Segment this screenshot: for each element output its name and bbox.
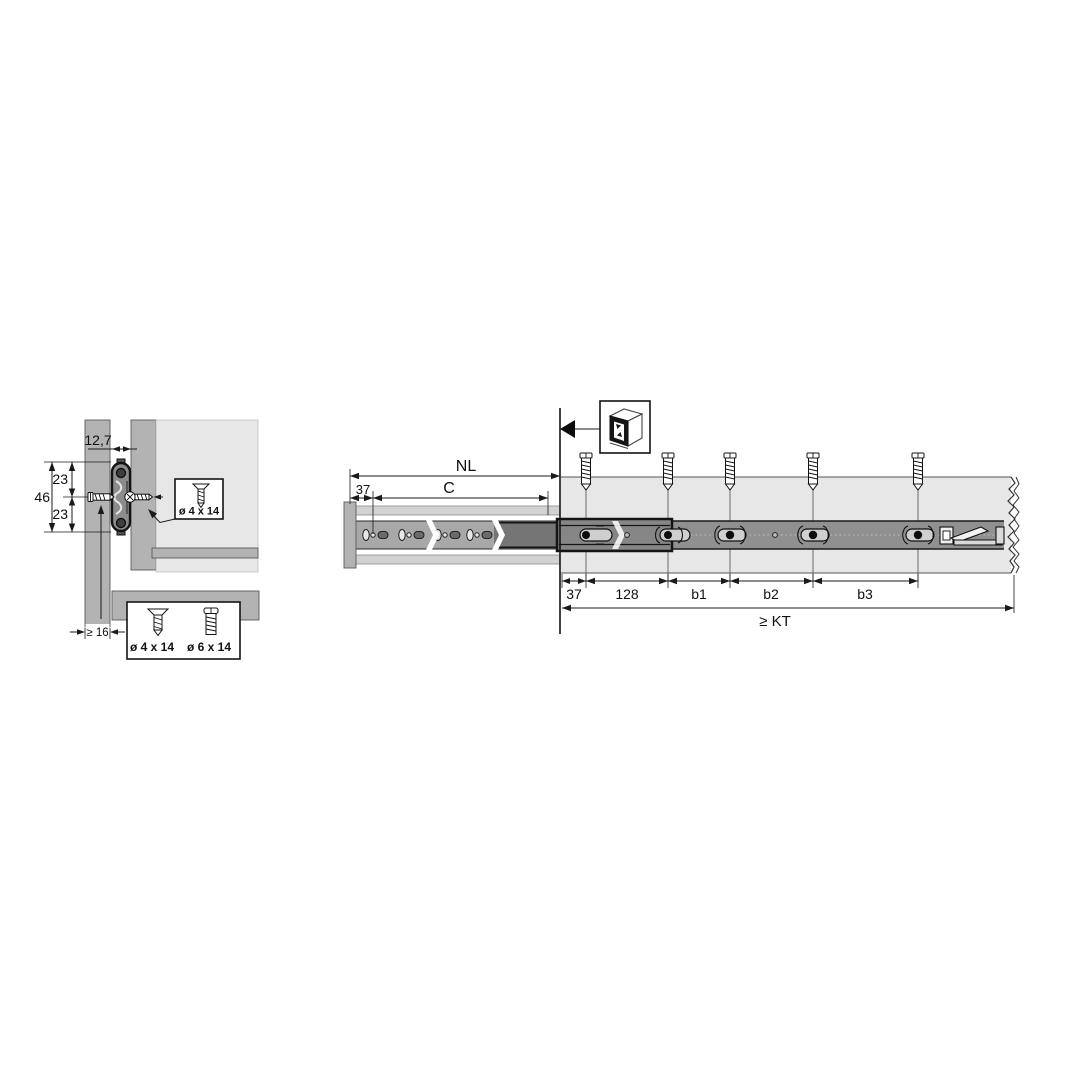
side-view: NL 37 C 37 [344, 401, 1019, 634]
dim-lower-label: 23 [52, 506, 68, 522]
screw-option-2-label: ø 6 x 14 [187, 640, 231, 654]
dim-37-top-label: 37 [356, 482, 370, 497]
dim-c-label: C [443, 480, 455, 497]
front-edge-arrow [560, 420, 575, 438]
dim-panel-thickness-label: ≥ 16 [86, 627, 108, 639]
dim-panel-thickness: ≥ 16 [70, 624, 125, 639]
mounting-screw [724, 453, 736, 490]
dim-chain-1-label: 128 [615, 586, 639, 602]
dim-chain-4-label: b3 [857, 586, 873, 602]
dim-gap-label: 12,7 [84, 432, 111, 448]
dim-total-label: 46 [34, 489, 50, 505]
cabinet-side-panel [85, 420, 110, 627]
technical-drawing-page: 12,7 46 23 23 [0, 0, 1080, 1080]
dim-chain-0-label: 37 [566, 586, 582, 602]
nested-members-section [557, 519, 672, 551]
cross-section-view: 12,7 46 23 23 [34, 420, 259, 659]
dim-upper-label: 23 [52, 471, 68, 487]
mounting-screw [912, 453, 924, 490]
pan-head-screw-option-icon [204, 608, 218, 635]
drawing-svg: 12,7 46 23 23 [0, 0, 1080, 1080]
dim-chain: 37 128 b1 b2 b3 [562, 574, 918, 602]
cabinet-screw [88, 493, 114, 502]
mounting-screw [662, 453, 674, 490]
dim-nl-label: NL [456, 458, 477, 475]
drawer-bottom-panel [152, 548, 258, 558]
front-bracket [344, 502, 356, 568]
dim-chain-3-label: b2 [763, 586, 779, 602]
dim-kt-label: ≥ KT [759, 613, 791, 630]
intermediate-member-overlap [492, 520, 560, 549]
mounting-hole [580, 526, 612, 544]
mounting-screw [580, 453, 592, 490]
screw-option-1-label: ø 4 x 14 [130, 640, 174, 654]
mounting-screw [807, 453, 819, 490]
dim-chain-2-label: b1 [691, 586, 707, 602]
cabinet-pictogram-box [600, 401, 650, 453]
dim-cabinet-depth: ≥ KT [562, 605, 1014, 630]
screw-callout-label: ø 4 x 14 [179, 506, 220, 518]
dim-gap: 12,7 [84, 432, 137, 452]
